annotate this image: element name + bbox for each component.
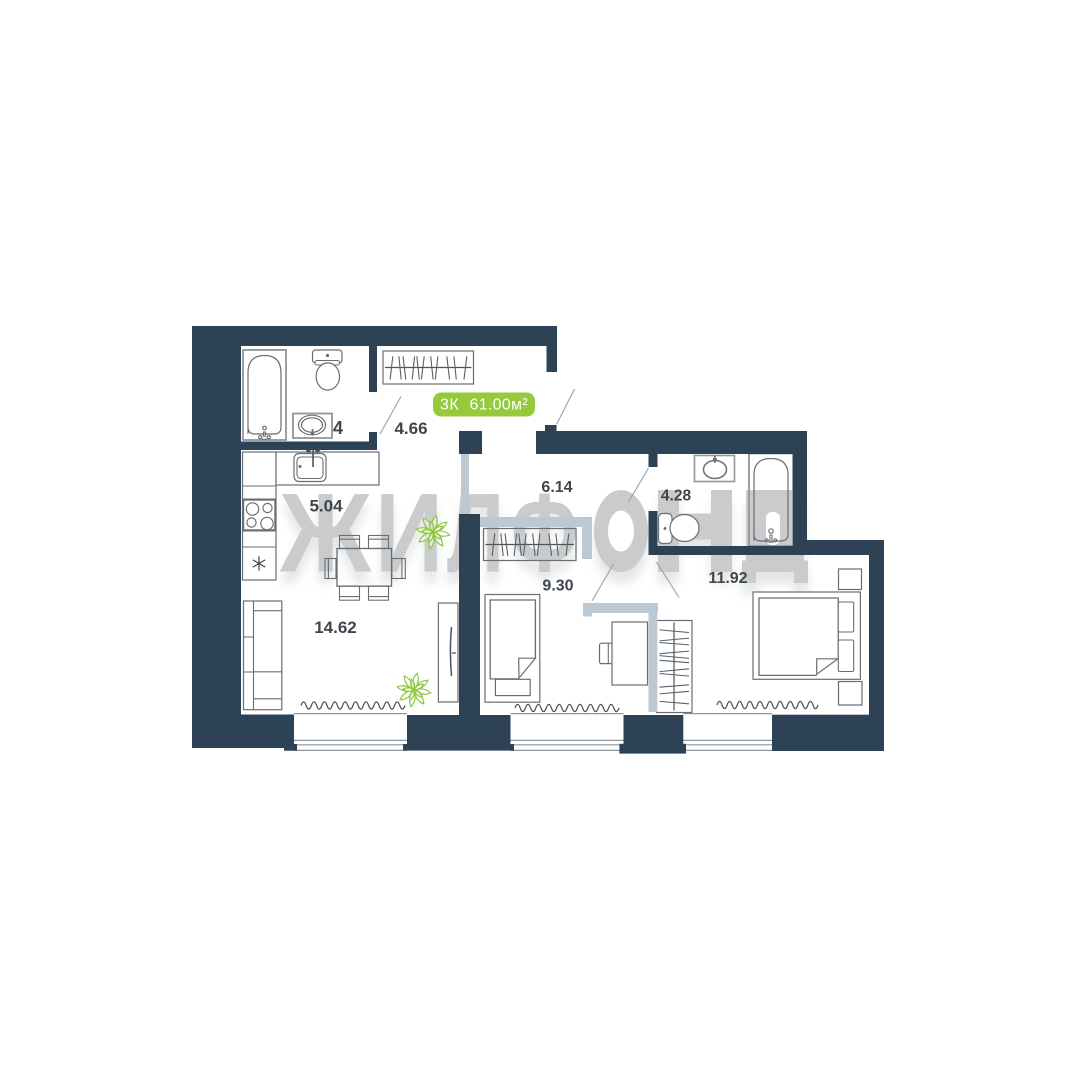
svg-text:5.04: 5.04 bbox=[309, 497, 343, 516]
svg-text:6.14: 6.14 bbox=[541, 479, 572, 496]
svg-text:4.28: 4.28 bbox=[661, 488, 692, 505]
svg-text:11.92: 11.92 bbox=[708, 570, 747, 587]
svg-text:4: 4 bbox=[333, 418, 343, 438]
svg-text:61.00м²: 61.00м² bbox=[470, 397, 529, 414]
svg-text:4.66: 4.66 bbox=[394, 419, 427, 438]
svg-text:14.62: 14.62 bbox=[314, 618, 357, 637]
svg-text:3К: 3К bbox=[440, 397, 459, 414]
svg-text:9.30: 9.30 bbox=[542, 578, 573, 595]
